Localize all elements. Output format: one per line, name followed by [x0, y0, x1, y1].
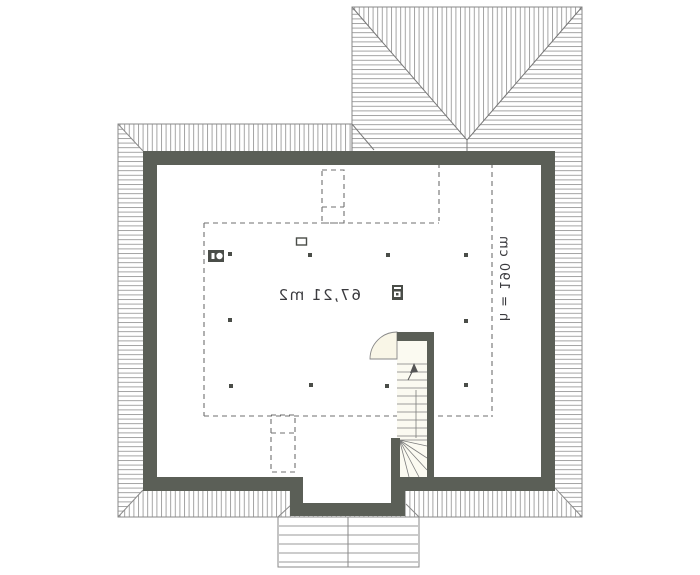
gable-roof — [352, 7, 582, 151]
wall-top — [143, 151, 555, 165]
marker-dot — [386, 253, 390, 257]
wall-bottom-right — [403, 477, 555, 491]
eave-right-band — [555, 151, 582, 517]
vent-slot — [394, 287, 401, 289]
marker-dot — [464, 253, 468, 257]
bay-wall-bottom — [290, 503, 405, 516]
stairwell-floor — [397, 341, 427, 477]
wall-left — [143, 151, 157, 491]
marker-dot — [228, 318, 232, 322]
wall-bottom-left — [143, 477, 303, 491]
floor-plan-canvas: 67,21 m2 h = 190 cm — [0, 0, 700, 575]
bay-wall-right — [391, 477, 405, 516]
stair-wall-right — [427, 332, 434, 480]
hollow-duct-symbol — [297, 238, 307, 245]
marker-dot — [464, 319, 468, 323]
ceiling-height-label: h = 190 cm — [495, 218, 511, 338]
bay-recess-floor — [303, 477, 391, 504]
vent-stack-symbol — [392, 285, 403, 300]
marker-dot — [228, 252, 232, 256]
stair-wall-winder — [391, 438, 400, 477]
eave-top-band — [118, 124, 352, 151]
eave-left-band — [118, 124, 143, 517]
wall-right — [541, 151, 555, 491]
room-area-label: 67,21 m2 — [252, 286, 386, 304]
marker-dot — [385, 384, 389, 388]
marker-dot — [308, 253, 312, 257]
marker-dot — [309, 383, 313, 387]
chimney-round-flue — [216, 253, 222, 259]
marker-dot — [229, 384, 233, 388]
attic-room-floor — [157, 165, 541, 477]
chimney-flue-symbol — [208, 250, 224, 262]
stair-wall-top — [397, 332, 428, 341]
chimney-slot — [212, 253, 215, 259]
vent-core — [396, 293, 399, 296]
marker-dot — [464, 383, 468, 387]
